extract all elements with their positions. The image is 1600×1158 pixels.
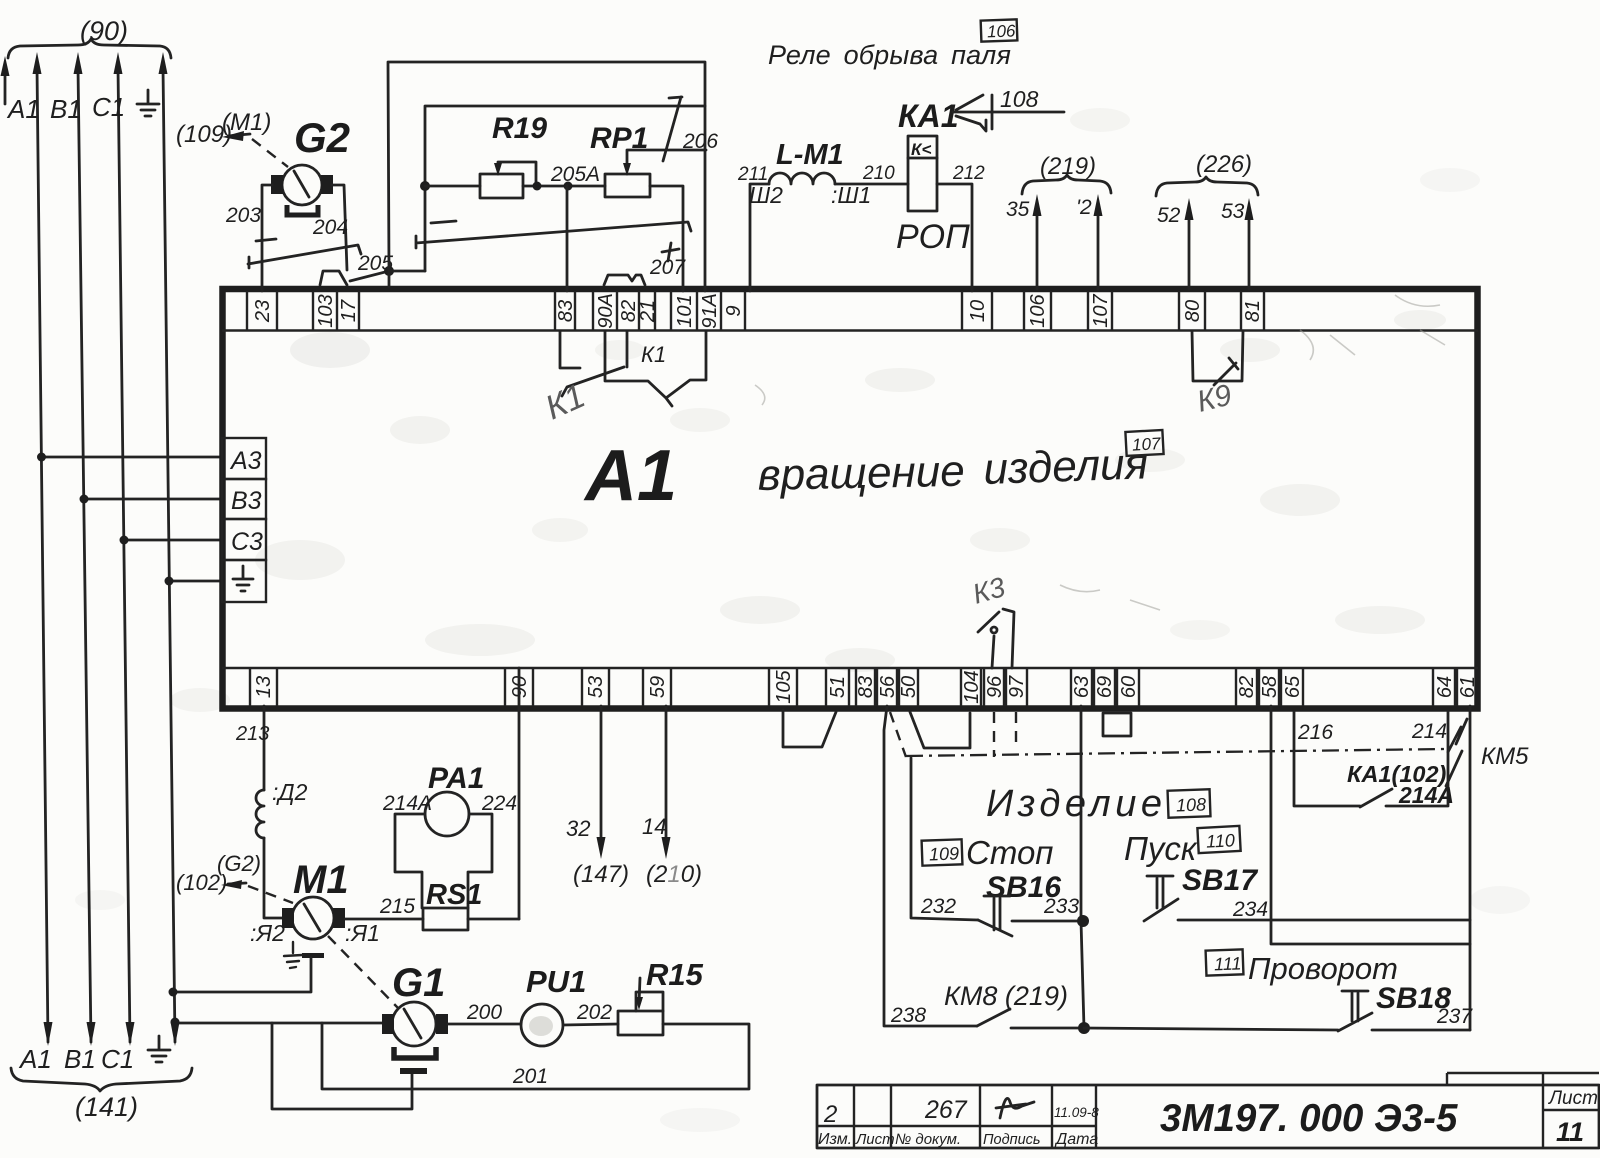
- svg-text:С1: С1: [92, 92, 125, 122]
- svg-text:Изделие: Изделие: [986, 783, 1167, 825]
- svg-text:32: 32: [566, 816, 590, 841]
- svg-text:69: 69: [1094, 676, 1116, 698]
- svg-text:В3: В3: [231, 487, 262, 515]
- svg-text:(141): (141): [75, 1092, 138, 1122]
- svg-text:83: 83: [555, 300, 577, 322]
- svg-text:К<: К<: [911, 140, 931, 159]
- svg-text:R19: R19: [492, 112, 547, 145]
- svg-text:107: 107: [1132, 434, 1162, 454]
- svg-text:90А: 90А: [595, 293, 617, 329]
- svg-text::Я2: :Я2: [250, 920, 285, 946]
- svg-text:65: 65: [1282, 675, 1304, 698]
- svg-text:53: 53: [1221, 200, 1245, 223]
- svg-text:52: 52: [1157, 204, 1181, 227]
- svg-text:А3: А3: [229, 447, 262, 475]
- svg-text:РU1: РU1: [526, 964, 586, 999]
- svg-text:238: 238: [890, 1004, 926, 1027]
- svg-text:2: 2: [823, 1101, 837, 1128]
- svg-text:(147): (147): [573, 861, 629, 888]
- svg-text:Пуск: Пуск: [1124, 830, 1198, 867]
- svg-text:213: 213: [235, 723, 269, 745]
- svg-text:А1: А1: [6, 94, 40, 124]
- svg-text:14: 14: [642, 814, 666, 839]
- svg-text:214: 214: [1411, 720, 1447, 743]
- svg-text:97: 97: [1006, 675, 1028, 698]
- svg-text:Подпись: Подпись: [983, 1132, 1041, 1148]
- svg-text:L-М1: L-М1: [776, 139, 844, 171]
- svg-text:64: 64: [1434, 676, 1456, 698]
- svg-text:207: 207: [649, 256, 686, 279]
- svg-text:111: 111: [1214, 953, 1242, 974]
- svg-text:200: 200: [466, 1001, 502, 1024]
- svg-text:214А: 214А: [1398, 782, 1454, 808]
- svg-text:267: 267: [924, 1096, 968, 1124]
- svg-text:224: 224: [481, 792, 517, 815]
- svg-text:203: 203: [225, 204, 261, 227]
- svg-text:96: 96: [984, 675, 1006, 698]
- svg-text:210: 210: [862, 163, 895, 184]
- svg-text:вращение: вращение: [757, 447, 965, 500]
- svg-text:104: 104: [961, 670, 983, 703]
- svg-text:212: 212: [952, 163, 985, 184]
- svg-text:106: 106: [987, 21, 1017, 41]
- svg-text:КМ5: КМ5: [1481, 743, 1529, 770]
- svg-text:51: 51: [827, 676, 849, 698]
- svg-text:RS1: RS1: [426, 879, 482, 911]
- svg-text:103: 103: [315, 294, 337, 327]
- svg-text:216: 216: [1297, 721, 1333, 744]
- svg-text:59: 59: [647, 676, 669, 698]
- svg-text:Ш2: Ш2: [749, 182, 783, 208]
- svg-text:КА1: КА1: [898, 98, 959, 134]
- svg-text:82: 82: [1236, 676, 1258, 698]
- svg-text:56: 56: [877, 675, 899, 698]
- svg-text:21: 21: [637, 300, 659, 323]
- svg-text:3М197. 000 Э3-5: 3М197. 000 Э3-5: [1160, 1097, 1458, 1140]
- svg-text:G1: G1: [392, 961, 445, 1005]
- svg-text:РОП: РОП: [896, 218, 970, 256]
- svg-text:108: 108: [1000, 86, 1039, 112]
- svg-text:В1: В1: [64, 1044, 96, 1074]
- svg-text:109: 109: [929, 843, 960, 864]
- svg-text::Я1: :Я1: [345, 920, 380, 946]
- svg-text:В1: В1: [50, 94, 82, 124]
- svg-text:'2: '2: [1076, 196, 1092, 219]
- svg-text:Изм.: Изм.: [818, 1131, 852, 1148]
- svg-text:215: 215: [379, 895, 415, 918]
- svg-text:23: 23: [252, 300, 274, 323]
- svg-text:35: 35: [1006, 198, 1030, 221]
- svg-text:63: 63: [1071, 676, 1093, 698]
- svg-text:106: 106: [1027, 293, 1049, 327]
- svg-text::Д2: :Д2: [272, 779, 308, 805]
- svg-text:(М1): (М1): [222, 109, 271, 136]
- svg-text:80: 80: [1182, 300, 1204, 322]
- svg-text:(219): (219): [1040, 153, 1096, 180]
- svg-text:(226): (226): [1196, 151, 1252, 178]
- svg-text:201: 201: [512, 1065, 548, 1088]
- svg-text:С1: С1: [101, 1044, 134, 1074]
- svg-text:10: 10: [967, 300, 989, 322]
- svg-text:(90): (90): [80, 16, 128, 46]
- svg-text:Реле обрыва паля: Реле обрыва паля: [768, 40, 1011, 70]
- svg-text:9: 9: [723, 305, 745, 316]
- svg-text:17: 17: [338, 299, 360, 322]
- svg-text:214А: 214А: [382, 792, 432, 815]
- svg-text:237: 237: [1436, 1005, 1473, 1028]
- svg-text:Дата: Дата: [1054, 1131, 1098, 1148]
- svg-text:105: 105: [773, 669, 795, 703]
- svg-text:G2: G2: [294, 114, 350, 161]
- svg-text:Стоп: Стоп: [966, 834, 1053, 871]
- svg-text:13: 13: [253, 676, 275, 698]
- svg-text:53: 53: [585, 676, 607, 698]
- svg-text:КМ8 (219): КМ8 (219): [944, 981, 1068, 1011]
- svg-text:Проворот: Проворот: [1248, 951, 1398, 986]
- svg-text:50: 50: [898, 676, 920, 698]
- svg-text:107: 107: [1090, 293, 1112, 327]
- svg-text:101: 101: [674, 294, 696, 327]
- svg-text:РА1: РА1: [428, 762, 484, 795]
- svg-text:А1: А1: [583, 436, 677, 516]
- svg-text:108: 108: [1176, 794, 1207, 815]
- svg-text:С3: С3: [231, 528, 263, 556]
- svg-text:91А: 91А: [699, 293, 721, 329]
- svg-text:81: 81: [1242, 300, 1264, 322]
- svg-text:(210): (210): [646, 861, 702, 888]
- svg-text:изделия: изделия: [983, 439, 1149, 494]
- svg-text:234: 234: [1232, 898, 1268, 921]
- svg-text:(G2): (G2): [217, 851, 261, 876]
- svg-text:61: 61: [1457, 676, 1479, 698]
- svg-text:К1: К1: [641, 342, 666, 367]
- svg-text:Лист: Лист: [855, 1131, 895, 1148]
- svg-text:204: 204: [312, 216, 348, 239]
- svg-text:232: 232: [920, 895, 956, 918]
- svg-text:Лист: Лист: [1547, 1088, 1598, 1109]
- svg-text::Ш1: :Ш1: [831, 182, 871, 208]
- svg-text:SВ17: SВ17: [1182, 864, 1258, 897]
- svg-text:58: 58: [1259, 676, 1281, 698]
- svg-text:60: 60: [1118, 676, 1140, 698]
- svg-text:11.09-8: 11.09-8: [1054, 1105, 1099, 1120]
- svg-text:83: 83: [855, 676, 877, 698]
- svg-text:202: 202: [576, 1001, 612, 1024]
- svg-text:11: 11: [1556, 1117, 1584, 1147]
- svg-text:№ докум.: № докум.: [895, 1131, 961, 1148]
- svg-text:R15: R15: [646, 957, 704, 992]
- svg-text:205А: 205А: [550, 163, 600, 186]
- svg-text:110: 110: [1206, 830, 1236, 851]
- svg-text:А1: А1: [18, 1044, 52, 1074]
- svg-text:М1: М1: [293, 858, 349, 902]
- svg-text:233: 233: [1043, 895, 1079, 918]
